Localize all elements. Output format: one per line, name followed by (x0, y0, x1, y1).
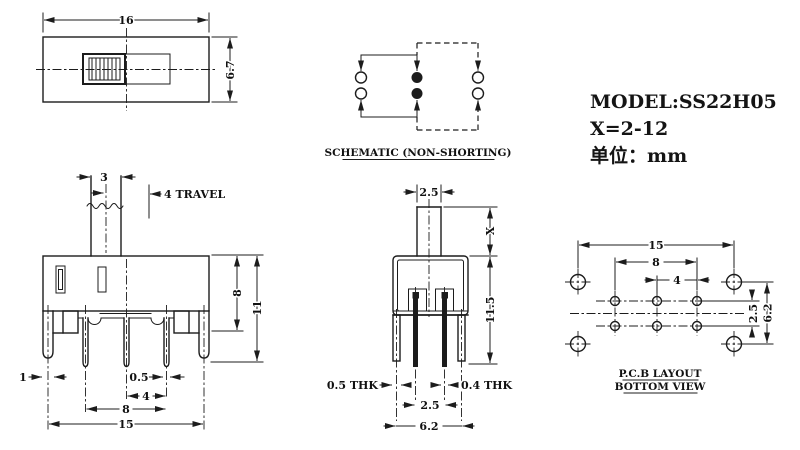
dim-pcb-pin-pitch: 4 (673, 274, 681, 287)
dim-pin-width: 0.5 (129, 371, 148, 384)
front-view-base (43, 311, 209, 358)
dim-top-height: 6.7 (224, 60, 237, 79)
dim-body-height: 8 (231, 289, 244, 297)
top-view-drawing: 16 6.7 (36, 13, 237, 111)
terminal-common-top (412, 72, 423, 83)
dim-pin-span: 8 (122, 403, 130, 416)
dim-side-body-height: 11.5 (484, 297, 497, 324)
switch-technical-drawing: 16 6.7 SCHEMA (0, 0, 800, 450)
terminal-open-left-top (356, 72, 367, 83)
dim-side-pin-pitch: 2.5 (420, 399, 439, 412)
pcb-caption-line2: BOTTOM VIEW (615, 381, 706, 393)
top-view-dimensions: 16 6.7 (43, 13, 237, 102)
side-view-legs (393, 315, 465, 361)
terminal-open-left-bottom (356, 88, 367, 99)
dim-pcb-corner-row-pitch: 6.2 (762, 303, 775, 322)
pcb-layout-drawing: 15 8 4 2.5 6.2 P.C.B (565, 239, 775, 393)
dim-leg-span: 6.2 (419, 420, 438, 433)
datasheet-page: 16 6.7 SCHEMA (0, 0, 800, 450)
top-view-knob-hatch (89, 58, 120, 80)
front-view-dimensions: 3 4 TRAVEL 8 11 1 0.5 (19, 171, 264, 431)
schematic-drawing: SCHEMATIC (NON-SHORTING) (325, 43, 512, 160)
dim-pcb-pin-span: 8 (652, 256, 660, 269)
dim-tab-width: 1 (19, 371, 27, 384)
schematic-caption: SCHEMATIC (NON-SHORTING) (325, 147, 512, 159)
side-view-dimensions: 2.5 X 11.5 0.5 THK 0.4 THK 2.5 (327, 185, 513, 433)
dim-mount-span: 15 (118, 418, 133, 431)
model-info: MODEL:SS22H05 X=2-12 单位：mm (590, 91, 777, 167)
terminal-open-right-top (473, 72, 484, 83)
front-view-body-holes (56, 266, 106, 293)
schematic-dashed-box (417, 43, 478, 130)
side-view-body-outline (393, 256, 468, 315)
dim-pcb-row-pitch: 2.5 (747, 304, 760, 323)
front-view-body-outline (43, 256, 209, 311)
front-view-drawing: 3 4 TRAVEL 8 11 1 0.5 (19, 171, 264, 432)
unit-label: 单位：mm (590, 144, 687, 167)
side-view-drawing: 2.5 X 11.5 0.5 THK 0.4 THK 2.5 (327, 185, 513, 433)
schematic-wiring (361, 55, 417, 117)
front-view-pins (83, 318, 169, 367)
dim-stem-width: 3 (100, 171, 108, 184)
dim-pcb-corner-span: 15 (648, 239, 663, 252)
travel-range: X=2-12 (590, 118, 668, 140)
dim-leg-thickness: 0.5 THK (327, 379, 379, 392)
terminal-open-right-bottom (473, 88, 484, 99)
dim-pin-pitch: 4 (142, 390, 150, 403)
dim-travel: 4 TRAVEL (164, 188, 225, 201)
model-number: MODEL:SS22H05 (590, 91, 777, 113)
dim-top-width: 16 (118, 14, 134, 27)
side-view-stem (417, 199, 441, 317)
dim-side-stem-width: 2.5 (419, 186, 438, 199)
dim-pin-thickness: 0.4 THK (461, 379, 513, 392)
stem-break-line (87, 204, 123, 209)
pcb-centerlines (570, 291, 746, 336)
pcb-dimensions: 15 8 4 2.5 6.2 (578, 239, 775, 344)
terminal-common-bottom (412, 88, 423, 99)
pcb-corner-holes (565, 269, 747, 357)
front-view-stem (87, 176, 123, 256)
dim-total-height: 11 (251, 300, 264, 315)
pcb-caption-line1: P.C.B LAYOUT (619, 368, 702, 380)
dim-side-stem-height: X (484, 226, 497, 235)
